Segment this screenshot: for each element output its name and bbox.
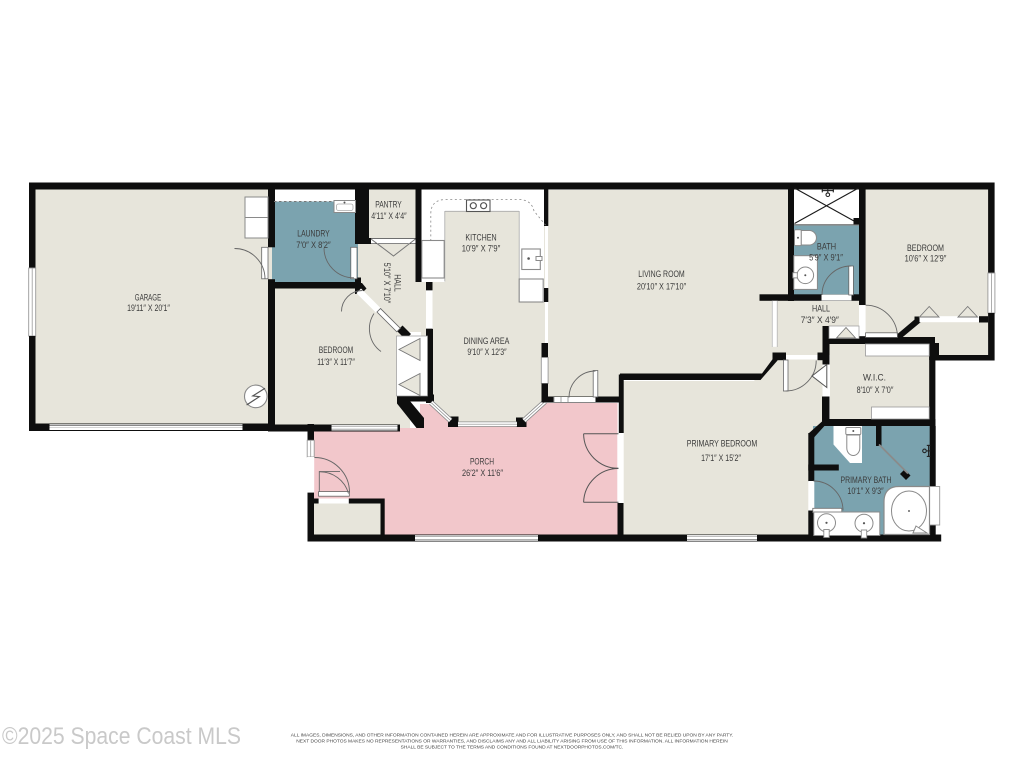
svg-text:BEDROOM: BEDROOM <box>907 243 944 253</box>
svg-text:7′3″ X 4′9″: 7′3″ X 4′9″ <box>801 315 840 325</box>
svg-text:©2025 Space Coast MLS: ©2025 Space Coast MLS <box>2 723 241 750</box>
svg-text:DINING AREA: DINING AREA <box>464 336 510 346</box>
svg-text:SHALL BE SUBJECT TO THE TERMS: SHALL BE SUBJECT TO THE TERMS AND CONDIT… <box>401 745 624 751</box>
svg-text:PANTRY: PANTRY <box>375 200 402 210</box>
svg-text:11′3″ X 11′7″: 11′3″ X 11′7″ <box>317 357 355 367</box>
svg-text:HALL: HALL <box>393 274 403 292</box>
svg-text:W.I.C.: W.I.C. <box>863 373 886 383</box>
svg-text:10′9″ X 7′9″: 10′9″ X 7′9″ <box>462 244 501 254</box>
svg-text:9′10″ X 12′3″: 9′10″ X 12′3″ <box>467 347 507 357</box>
svg-text:20′10″ X 17′10″: 20′10″ X 17′10″ <box>637 281 687 291</box>
svg-text:HALL: HALL <box>812 304 830 314</box>
svg-text:10′6″ X 12′9″: 10′6″ X 12′9″ <box>905 254 947 264</box>
svg-text:5′9″ X 9′1″: 5′9″ X 9′1″ <box>809 253 843 263</box>
svg-text:17′1″ X 15′2″: 17′1″ X 15′2″ <box>701 453 741 463</box>
svg-text:LAUNDRY: LAUNDRY <box>297 229 329 239</box>
svg-text:7′0″ X 8′2″: 7′0″ X 8′2″ <box>296 240 331 250</box>
svg-text:PRIMARY BATH: PRIMARY BATH <box>841 475 892 485</box>
svg-text:26′2″ X 11′6″: 26′2″ X 11′6″ <box>462 468 504 478</box>
svg-text:NEXT DOOR PHOTOS MAKES NO REPR: NEXT DOOR PHOTOS MAKES NO REPRESENTATION… <box>296 739 728 745</box>
svg-text:KITCHEN: KITCHEN <box>465 233 496 243</box>
svg-text:10′1″ X 9′3″: 10′1″ X 9′3″ <box>847 486 884 496</box>
svg-text:PRIMARY BEDROOM: PRIMARY BEDROOM <box>687 439 758 449</box>
svg-text:8′10″ X 7′0″: 8′10″ X 7′0″ <box>857 385 894 395</box>
svg-text:LIVING ROOM: LIVING ROOM <box>638 269 685 279</box>
svg-text:5′10″ X 7′10″: 5′10″ X 7′10″ <box>382 263 392 304</box>
svg-text:19′11″ X 20′1″: 19′11″ X 20′1″ <box>127 303 170 313</box>
svg-text:BATH: BATH <box>817 242 836 252</box>
svg-text:4′11″ X 4′4″: 4′11″ X 4′4″ <box>371 211 407 221</box>
svg-text:GARAGE: GARAGE <box>135 293 162 303</box>
svg-text:BEDROOM: BEDROOM <box>319 345 354 355</box>
svg-text:ALL IMAGES, DIMENSIONS, AND OT: ALL IMAGES, DIMENSIONS, AND OTHER INFORM… <box>291 733 733 739</box>
svg-text:PORCH: PORCH <box>470 457 494 467</box>
